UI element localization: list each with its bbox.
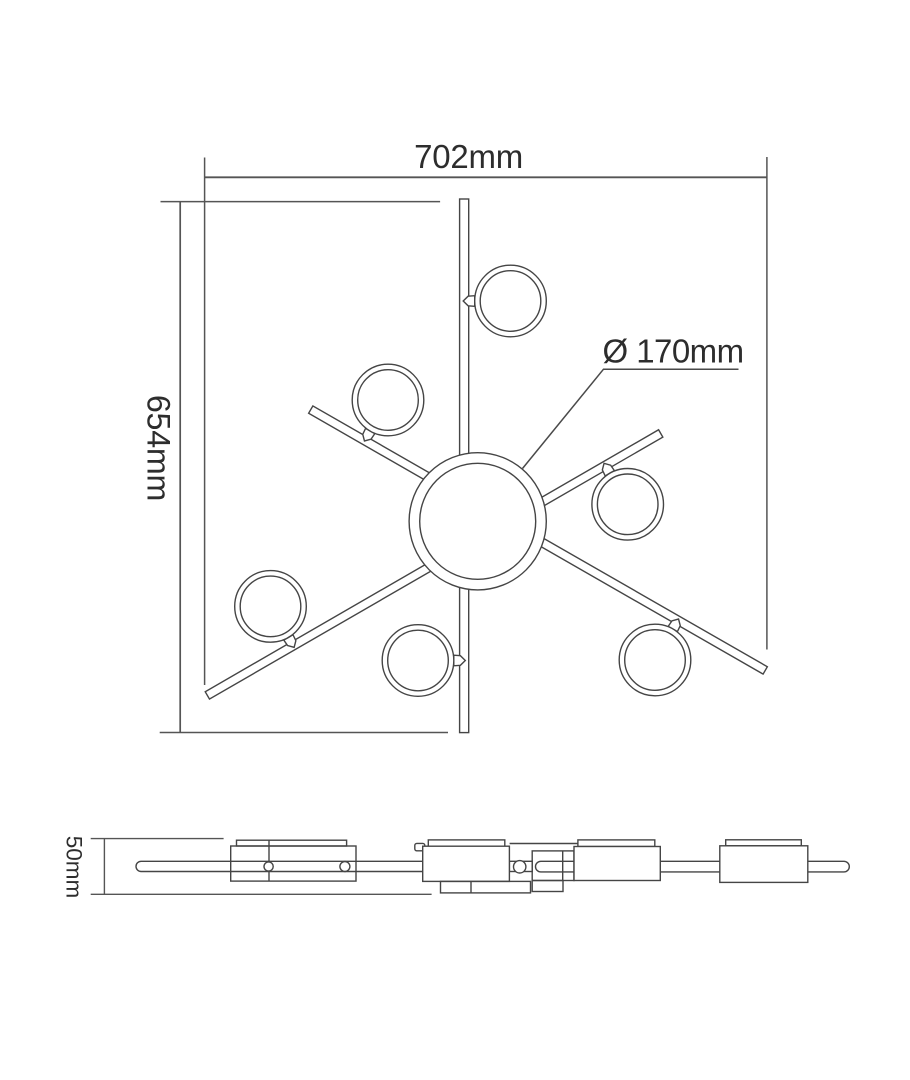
svg-text:50mm: 50mm [62,836,87,899]
svg-text:Ø 170mm: Ø 170mm [603,333,744,370]
svg-text:702mm: 702mm [414,138,523,175]
svg-text:654mm: 654mm [141,395,177,501]
